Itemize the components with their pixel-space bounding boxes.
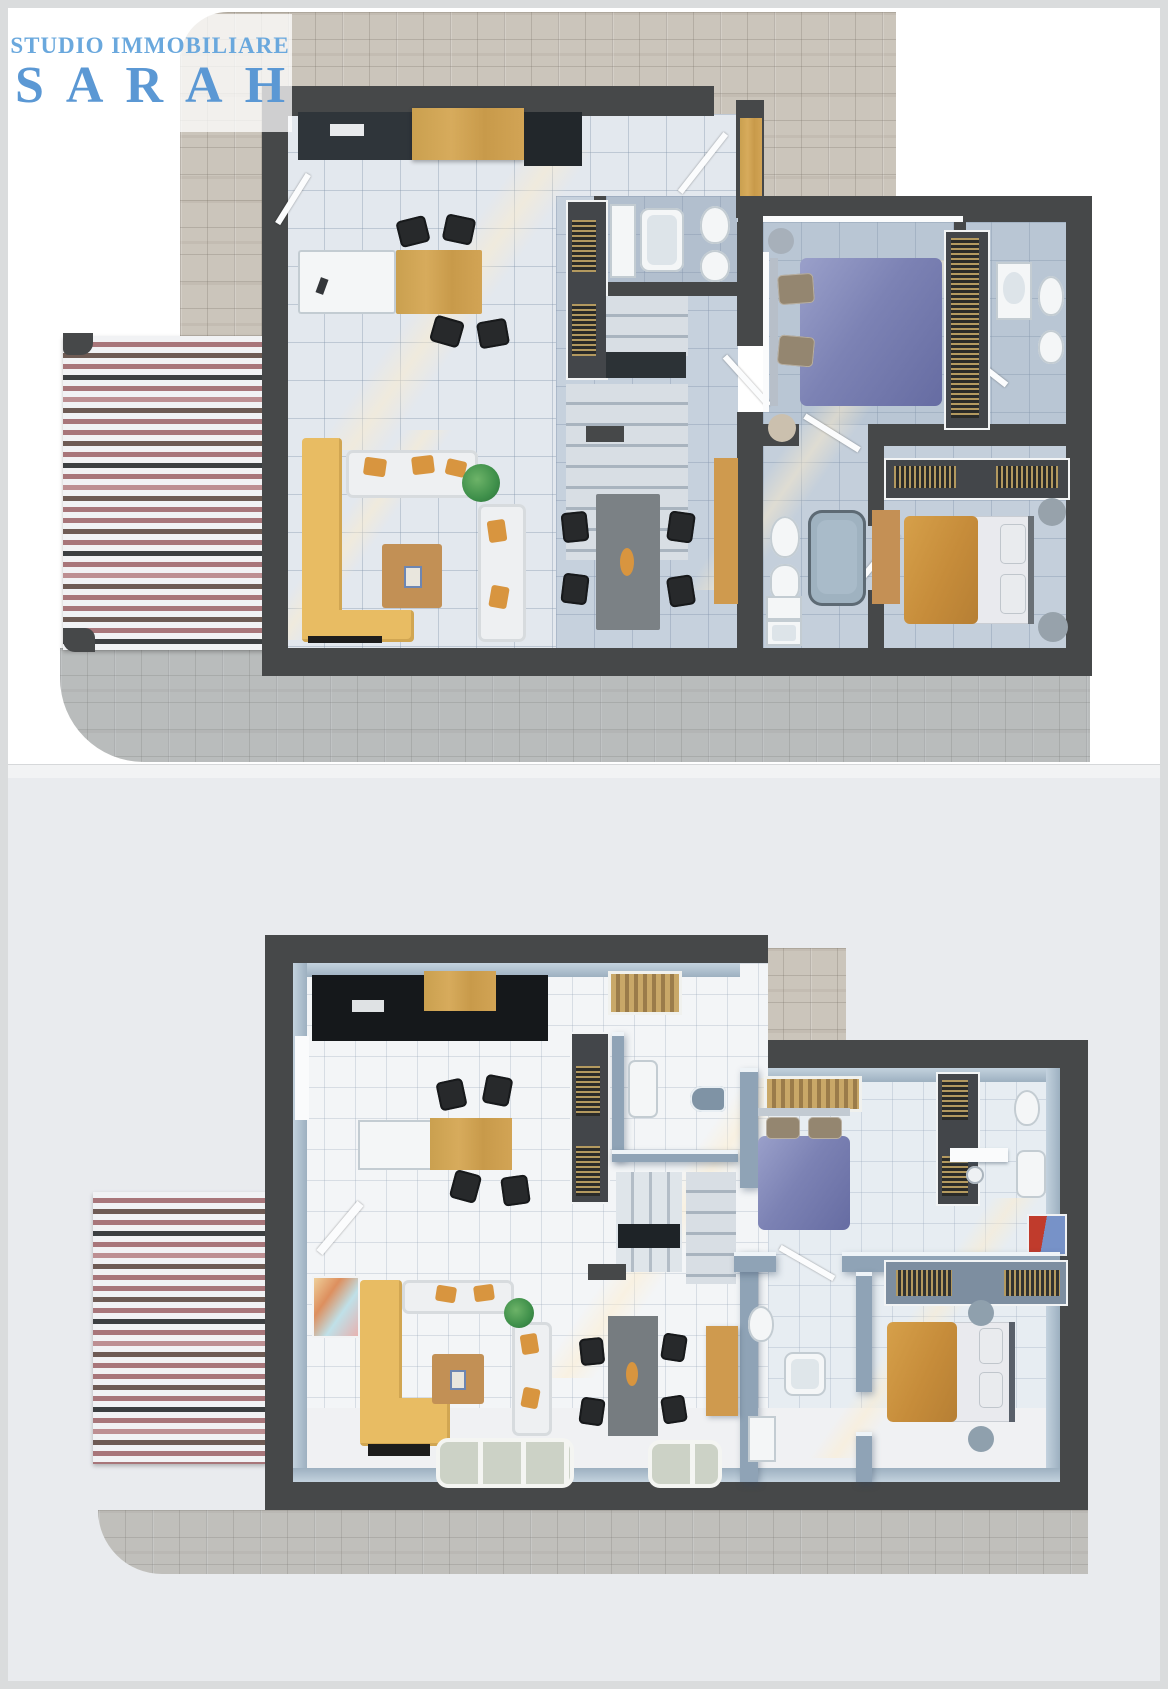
- wardrobe-slats: [996, 466, 1058, 488]
- bed-orange-duvet: [887, 1322, 957, 1422]
- sofa3d-white-side: [512, 1322, 552, 1436]
- agency-watermark: STUDIO IMMOBILIARE SARAH: [8, 14, 292, 132]
- bedroom3d-desk: [950, 1148, 1008, 1162]
- bath2-3d-toilet: [748, 1306, 774, 1342]
- table-vase: [620, 548, 634, 576]
- kitchen3d-island: [358, 1120, 432, 1170]
- bath3d-tub: [628, 1060, 658, 1118]
- sofa3d-white-top: [402, 1280, 514, 1314]
- coffee-table-book: [450, 1370, 466, 1390]
- wardrobe-slats: [576, 1146, 600, 1196]
- paving-left-strip: [180, 200, 264, 340]
- tub-basin: [817, 520, 857, 594]
- bed-orange: [904, 516, 1034, 624]
- glass-floor-panel-small: [648, 1440, 722, 1488]
- sink-basin: [1003, 272, 1025, 304]
- long-wardrobe: [884, 458, 1070, 500]
- dining-chair-3d: [660, 1332, 688, 1362]
- sofa-cushion: [473, 1284, 495, 1303]
- wall-left: [262, 86, 288, 648]
- bed-blue-duvet: [758, 1136, 850, 1230]
- terrace-awning-3d: [93, 1192, 267, 1464]
- bed3d-blue: [758, 1108, 850, 1230]
- bath2-toilet: [770, 516, 800, 558]
- bed-pillow: [979, 1372, 1003, 1408]
- bath3d-toilet: [690, 1086, 726, 1112]
- bath3d-wall-left: [612, 1032, 624, 1160]
- wall3d-top-left-wing: [265, 935, 768, 963]
- bath-main-toilet: [700, 206, 730, 244]
- dining-chair: [561, 511, 590, 544]
- kitchen3d-window: [295, 1036, 309, 1120]
- wall3d-bath2-right-lower: [856, 1432, 872, 1482]
- bed-pillow: [1000, 524, 1026, 564]
- sofa-cushion: [487, 519, 508, 543]
- agency-name-line2: SARAH: [0, 59, 307, 113]
- dining-table3d-kitchen: [430, 1118, 512, 1170]
- real-estate-floorplan-sheet: STUDIO IMMOBILIARE SARAH: [0, 0, 1168, 1689]
- dining-chair-3d: [660, 1394, 688, 1424]
- dining-table-kitchen: [396, 250, 482, 314]
- sofa-cushion: [363, 457, 387, 478]
- baseboard-bedroom-blue: [763, 216, 963, 222]
- stairs3d-side-flight: [686, 1172, 736, 1284]
- bed-orange-duvet: [904, 516, 978, 624]
- wardrobe-slats: [572, 220, 596, 272]
- bed-blue: [770, 258, 942, 406]
- sink-basin: [772, 625, 796, 641]
- bed-pillow: [979, 1328, 1003, 1364]
- plant: [462, 464, 500, 502]
- wall-bath-main-bottom: [594, 282, 738, 296]
- paving-bottom-tint: [98, 1510, 1088, 1574]
- floorplan-3d-panel: [0, 778, 1168, 1689]
- wardrobe-slats: [942, 1156, 968, 1196]
- bed-frame: [1028, 516, 1034, 624]
- bath-main-bidet: [700, 250, 730, 282]
- living-cabinet-tall: [714, 458, 738, 604]
- bed-headboard: [758, 1108, 850, 1116]
- agency-name-line1: STUDIO IMMOBILIARE: [10, 33, 289, 59]
- long-wardrobe-3d: [884, 1260, 1068, 1306]
- hall3d-block: [588, 1264, 626, 1280]
- sofa3d-yellow-seat: [360, 1398, 450, 1446]
- floorplan-2d-panel: STUDIO IMMOBILIARE SARAH: [0, 0, 1168, 766]
- kitchen-sink: [330, 124, 364, 136]
- wall3d-bedrooms-divider-left: [734, 1252, 776, 1272]
- bed-pillow: [1000, 574, 1026, 614]
- kitchen-island: [298, 250, 396, 314]
- coffee-table-book: [404, 566, 422, 588]
- bath2-3d-shower: [784, 1352, 826, 1396]
- bed-pillow: [777, 334, 815, 367]
- kitchen-chair: [476, 318, 510, 350]
- sofa-cushion: [411, 455, 435, 476]
- bath-blue-bidet: [1038, 330, 1064, 364]
- sofa-cushion: [435, 1285, 457, 1304]
- sofa-white-top: [346, 450, 478, 498]
- bath-main-tub: [640, 208, 684, 272]
- bedroom-orange-nightstand: [1038, 612, 1068, 642]
- dining-chair-3d: [578, 1396, 606, 1426]
- wall-hall-bedrooms-lower: [737, 412, 763, 648]
- wall3d-top-right-wing: [742, 1040, 1088, 1068]
- bath3d-wall-bottom: [612, 1150, 738, 1162]
- coffee-table: [382, 544, 442, 608]
- hall-step-block: [586, 426, 624, 442]
- kitchen3d-chair: [500, 1174, 531, 1206]
- bed3d-orange: [887, 1322, 1015, 1422]
- bedroom3d-skylight: [764, 1076, 862, 1112]
- table-vase-3d: [626, 1362, 638, 1386]
- bed-pillow: [808, 1117, 842, 1139]
- bedroom-orange-nightstand: [1038, 498, 1066, 526]
- hall3d-wardrobe: [570, 1032, 610, 1204]
- coffee-table-3d: [432, 1354, 484, 1404]
- wardrobe-slats: [572, 304, 596, 356]
- stairs3d-pit: [618, 1224, 680, 1248]
- sofa-white-side: [478, 504, 526, 642]
- bedroom-blue-stool: [768, 414, 796, 442]
- sofa-cushion: [520, 1387, 541, 1410]
- wall3d-hall-bedrooms-upper: [740, 1068, 758, 1188]
- bed-pillow: [777, 273, 815, 305]
- bedroom-blue-nightstand: [768, 228, 794, 254]
- glass-floor-panel-large: [436, 1438, 574, 1488]
- wall3d-left: [265, 935, 293, 1510]
- wardrobe-slats: [896, 1270, 952, 1296]
- bedroom-orange-desk: [872, 510, 900, 604]
- bath2-cabinet: [766, 596, 802, 620]
- wardrobe-slats: [1004, 1270, 1060, 1296]
- sofa-yellow-frame: [308, 636, 382, 643]
- wall3d-bath2-right-upper: [856, 1272, 872, 1392]
- stairs3d-flight: [616, 1172, 682, 1272]
- bedroom3d-nightstand: [968, 1426, 994, 1452]
- kitchen3d-chair: [481, 1074, 513, 1108]
- sofa-cushion: [520, 1333, 540, 1355]
- bed-pillow: [766, 1117, 800, 1139]
- dining-chair: [666, 574, 696, 608]
- sofa-cushion: [488, 585, 510, 610]
- bath2-sink: [766, 620, 802, 646]
- wall-bottom: [262, 648, 1092, 676]
- stairs-dark-landing: [606, 352, 686, 378]
- wall-painting-pastel: [312, 1276, 360, 1338]
- bath2-tub: [808, 510, 866, 606]
- awning-corner-post-bottom: [63, 628, 95, 652]
- bed-blue-duvet: [800, 258, 942, 406]
- kitchen-hood: [412, 108, 524, 160]
- bedroom-blue-wardrobe: [944, 230, 990, 430]
- kitchen-tall-unit: [524, 112, 582, 166]
- wall-hall-bedrooms-upper: [737, 222, 763, 346]
- sofa3d-yellow-frame: [368, 1444, 430, 1456]
- bath3d-blue-toilet: [1014, 1090, 1040, 1126]
- shower-tray: [791, 1359, 819, 1389]
- hall-wardrobe: [566, 200, 608, 380]
- tub-basin: [647, 215, 677, 265]
- wall-painting-red: [1027, 1214, 1067, 1256]
- plant-3d: [504, 1298, 534, 1328]
- dining-chair-3d: [579, 1337, 606, 1366]
- bedroom3d-desk-chair: [966, 1166, 984, 1184]
- bath2-3d-sink: [748, 1416, 776, 1462]
- bath-blue-sink-cabinet: [996, 262, 1032, 320]
- kitchen3d-sink: [352, 1000, 384, 1012]
- bath-blue-toilet: [1038, 276, 1064, 316]
- baseboard-bedroom-blue-left: [763, 252, 769, 412]
- kitchen3d-hood: [424, 971, 496, 1011]
- paving-top-patch: [756, 948, 846, 1052]
- bath-main-counter: [610, 204, 636, 278]
- bedroom3d-nightstand: [968, 1300, 994, 1326]
- bed-frame: [1009, 1322, 1015, 1422]
- kitchen-skylight: [608, 971, 682, 1015]
- wall-right: [1066, 196, 1092, 648]
- bath3d-blue-tub: [1016, 1150, 1046, 1198]
- dining-chair: [560, 573, 589, 606]
- bedroom3d-wardrobe: [936, 1072, 980, 1206]
- dining-chair: [666, 510, 696, 543]
- wardrobe-slats: [942, 1080, 968, 1120]
- living3d-cabinet-tall: [706, 1326, 738, 1416]
- stairs-upper-flight: [606, 296, 688, 356]
- awning-corner-post-top: [63, 333, 93, 355]
- wardrobe-slats: [894, 466, 956, 488]
- kitchen3d-chair: [435, 1078, 467, 1112]
- wardrobe-slats: [951, 238, 979, 418]
- wardrobe-slats: [576, 1066, 600, 1116]
